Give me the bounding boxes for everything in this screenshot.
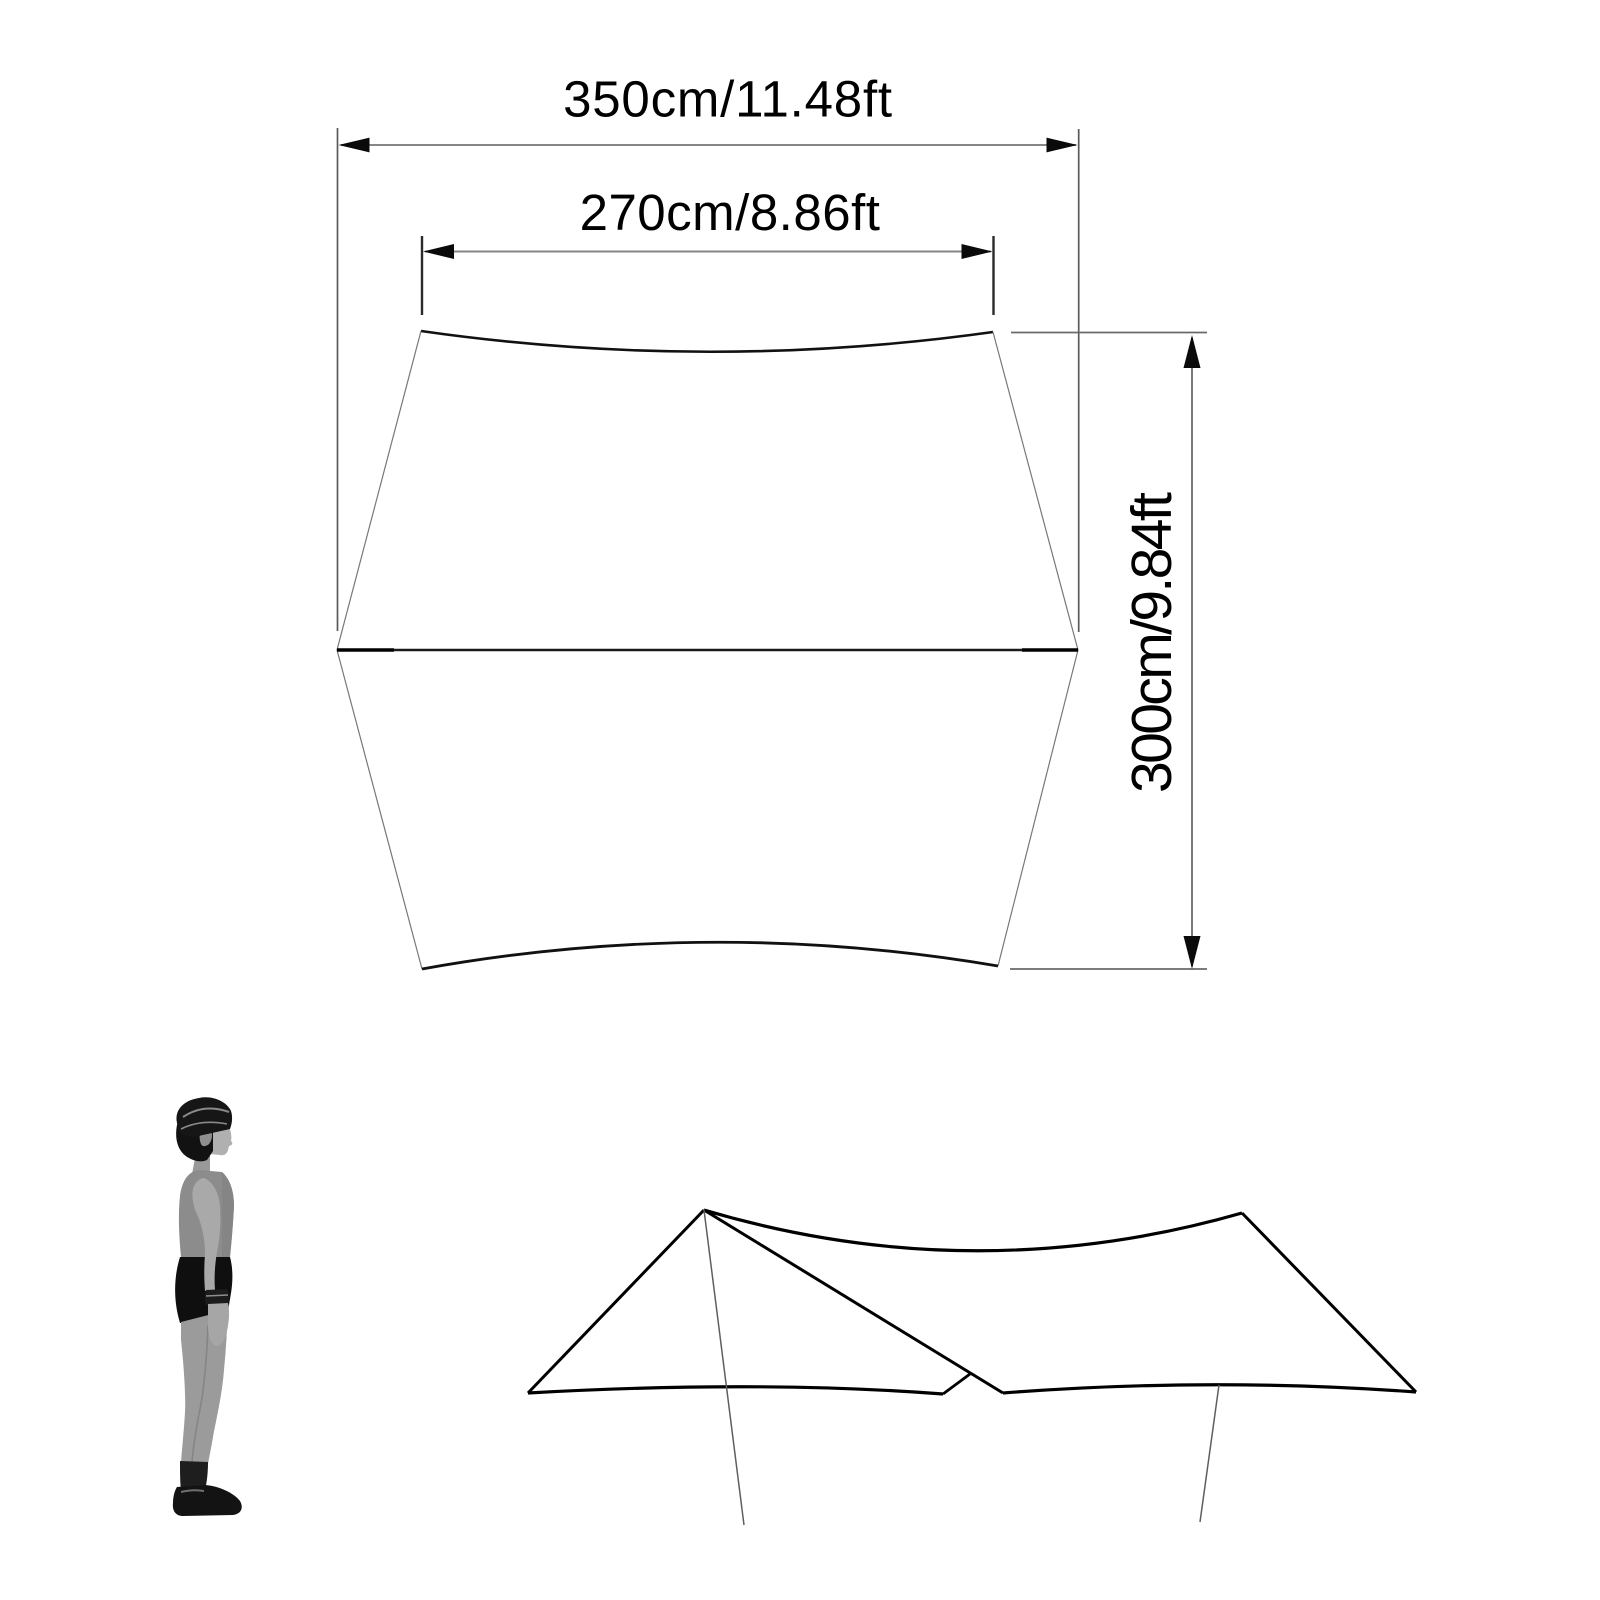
svg-text:350cm/11.48ft: 350cm/11.48ft [563, 71, 893, 128]
svg-text:270cm/8.86ft: 270cm/8.86ft [580, 184, 881, 241]
svg-text:300cm/9.84ft: 300cm/9.84ft [1120, 492, 1184, 793]
